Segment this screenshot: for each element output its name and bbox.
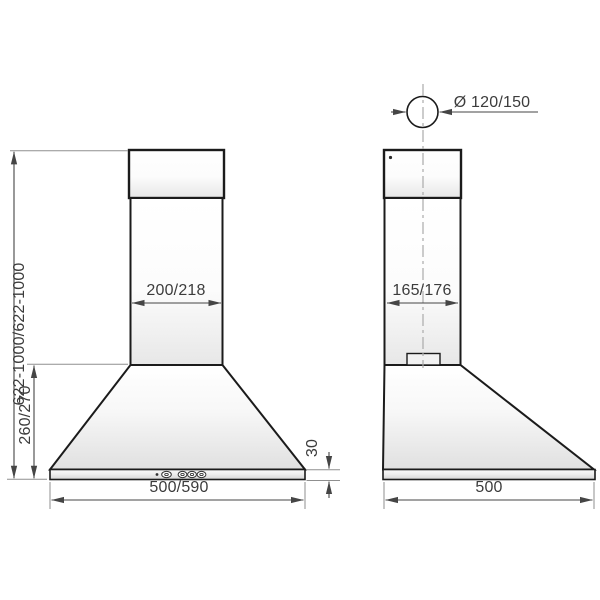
speed-button-3-icon <box>197 471 206 477</box>
control-panel <box>156 471 206 477</box>
dim-chimney-width-label: 200/218 <box>146 283 205 299</box>
front-view <box>50 150 305 480</box>
side-base-strip <box>383 470 595 480</box>
front-base-strip <box>50 470 305 480</box>
power-dot-icon <box>156 473 159 476</box>
technical-drawing <box>0 0 600 600</box>
dim-body-depth-label: 500 <box>475 480 502 496</box>
dim-hood-height-label: 260/270 <box>18 385 34 444</box>
speed-button-1-icon <box>178 471 187 477</box>
front-chimney-upper-section <box>129 150 224 198</box>
range-hood-dimension-drawing: 622-1000/622-1000 260/270 200/218 500/59… <box>0 0 600 600</box>
dim-chimney-depth-label: 165/176 <box>392 283 451 299</box>
dim-total-height-label: 622-1000/622-1000 <box>12 262 28 405</box>
front-hood-canopy <box>50 365 305 470</box>
side-hood-canopy <box>383 365 594 470</box>
light-button-icon <box>162 471 172 477</box>
mount-dot <box>389 156 392 159</box>
speed-button-2-icon <box>188 471 197 477</box>
dim-base-height-label: 30 <box>305 439 321 457</box>
dim-duct-diameter-label: Ø 120/150 <box>454 95 531 111</box>
dim-body-width-label: 500/590 <box>149 480 208 496</box>
